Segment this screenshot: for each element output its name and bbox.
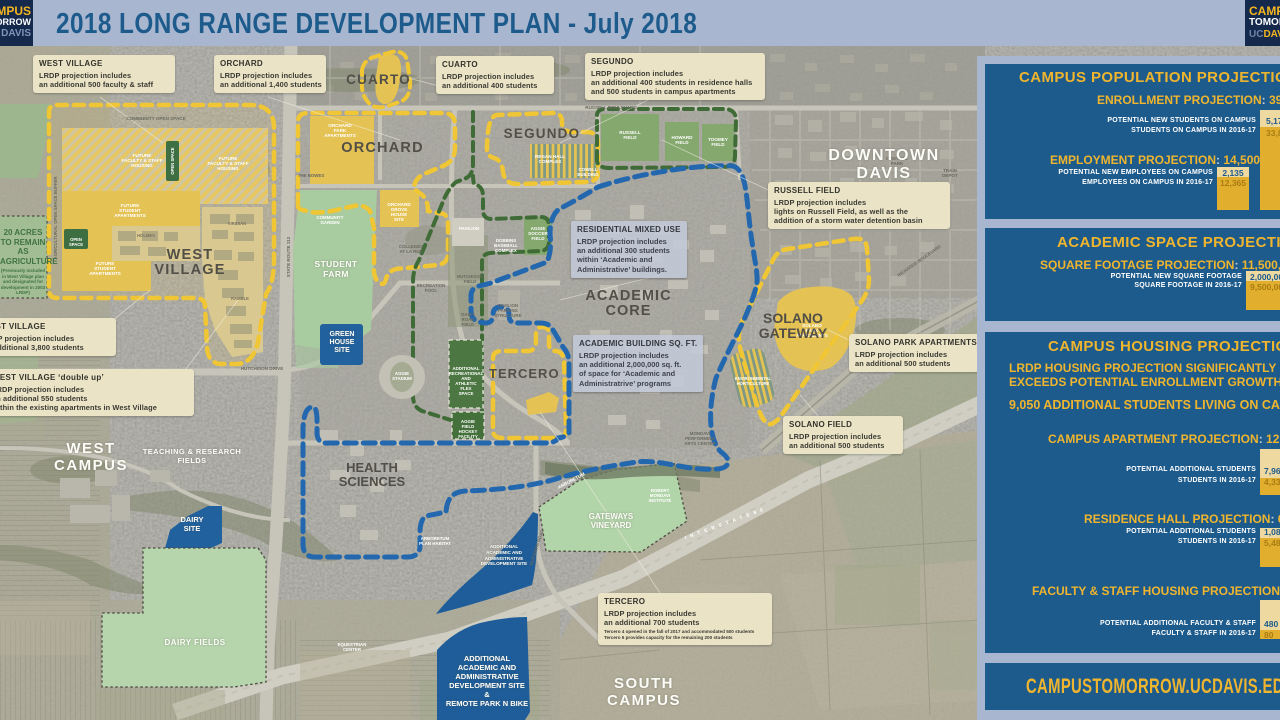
svg-text:FIELD: FIELD <box>711 142 725 147</box>
svg-text:FIELD: FIELD <box>464 279 477 284</box>
svg-text:ARTS CENTER: ARTS CENTER <box>684 441 716 446</box>
svg-text:SPACE: SPACE <box>459 391 474 396</box>
svg-text:AGRICULTURAL OPEN SPACE BUFFER: AGRICULTURAL OPEN SPACE BUFFER <box>53 176 58 260</box>
svg-text:HOUSING: HOUSING <box>131 163 153 168</box>
svg-text:AT LA RUE: AT LA RUE <box>400 249 423 254</box>
svg-text:OPEN SPACE: OPEN SPACE <box>170 147 175 174</box>
svg-text:FIELD: FIELD <box>462 322 475 327</box>
svg-text:HORTICULTURE: HORTICULTURE <box>737 381 770 386</box>
svg-text:CENTER: CENTER <box>343 647 362 652</box>
svg-text:POOL: POOL <box>425 288 438 293</box>
svg-text:STATE ROUTE 113: STATE ROUTE 113 <box>286 236 291 277</box>
svg-text:THE BOWES: THE BOWES <box>298 173 325 178</box>
svg-text:HOLMES: HOLMES <box>137 233 155 238</box>
svg-text:RAMBLE: RAMBLE <box>231 296 249 301</box>
svg-text:APARTMENTS: APARTMENTS <box>114 213 146 218</box>
svg-text:APARTMENTS: APARTMENTS <box>324 133 356 138</box>
svg-text:FIELD: FIELD <box>675 140 689 145</box>
svg-text:COMMUNITY OPEN SPACE: COMMUNITY OPEN SPACE <box>126 116 185 121</box>
svg-text:FACILITY: FACILITY <box>458 434 478 439</box>
svg-text:BUILDING: BUILDING <box>577 172 599 177</box>
svg-text:SPACE: SPACE <box>69 242 83 247</box>
svg-text:FIELD: FIELD <box>531 236 545 241</box>
svg-text:COMPLEX: COMPLEX <box>539 159 563 164</box>
svg-text:STRUCTURE: STRUCTURE <box>494 313 521 318</box>
svg-text:INSTITUTE: INSTITUTE <box>649 498 672 503</box>
svg-text:SITE: SITE <box>394 217 404 222</box>
svg-text:APARTMENTS: APARTMENTS <box>89 271 121 276</box>
svg-text:PAVILION: PAVILION <box>459 226 479 231</box>
svg-text:VIRIDIAN: VIRIDIAN <box>228 221 246 226</box>
svg-text:COMPLEX: COMPLEX <box>495 248 517 253</box>
svg-text:HOUSING: HOUSING <box>217 166 239 171</box>
svg-text:GARDEN: GARDEN <box>320 220 339 225</box>
svg-text:RUSSELL BOULEVARD: RUSSELL BOULEVARD <box>585 105 637 110</box>
svg-text:HUTCHISON DRIVE: HUTCHISON DRIVE <box>241 366 284 371</box>
svg-text:PLAN HABITAT: PLAN HABITAT <box>419 541 451 546</box>
svg-text:STADIUM: STADIUM <box>392 376 412 381</box>
svg-text:FIELD: FIELD <box>623 135 637 140</box>
